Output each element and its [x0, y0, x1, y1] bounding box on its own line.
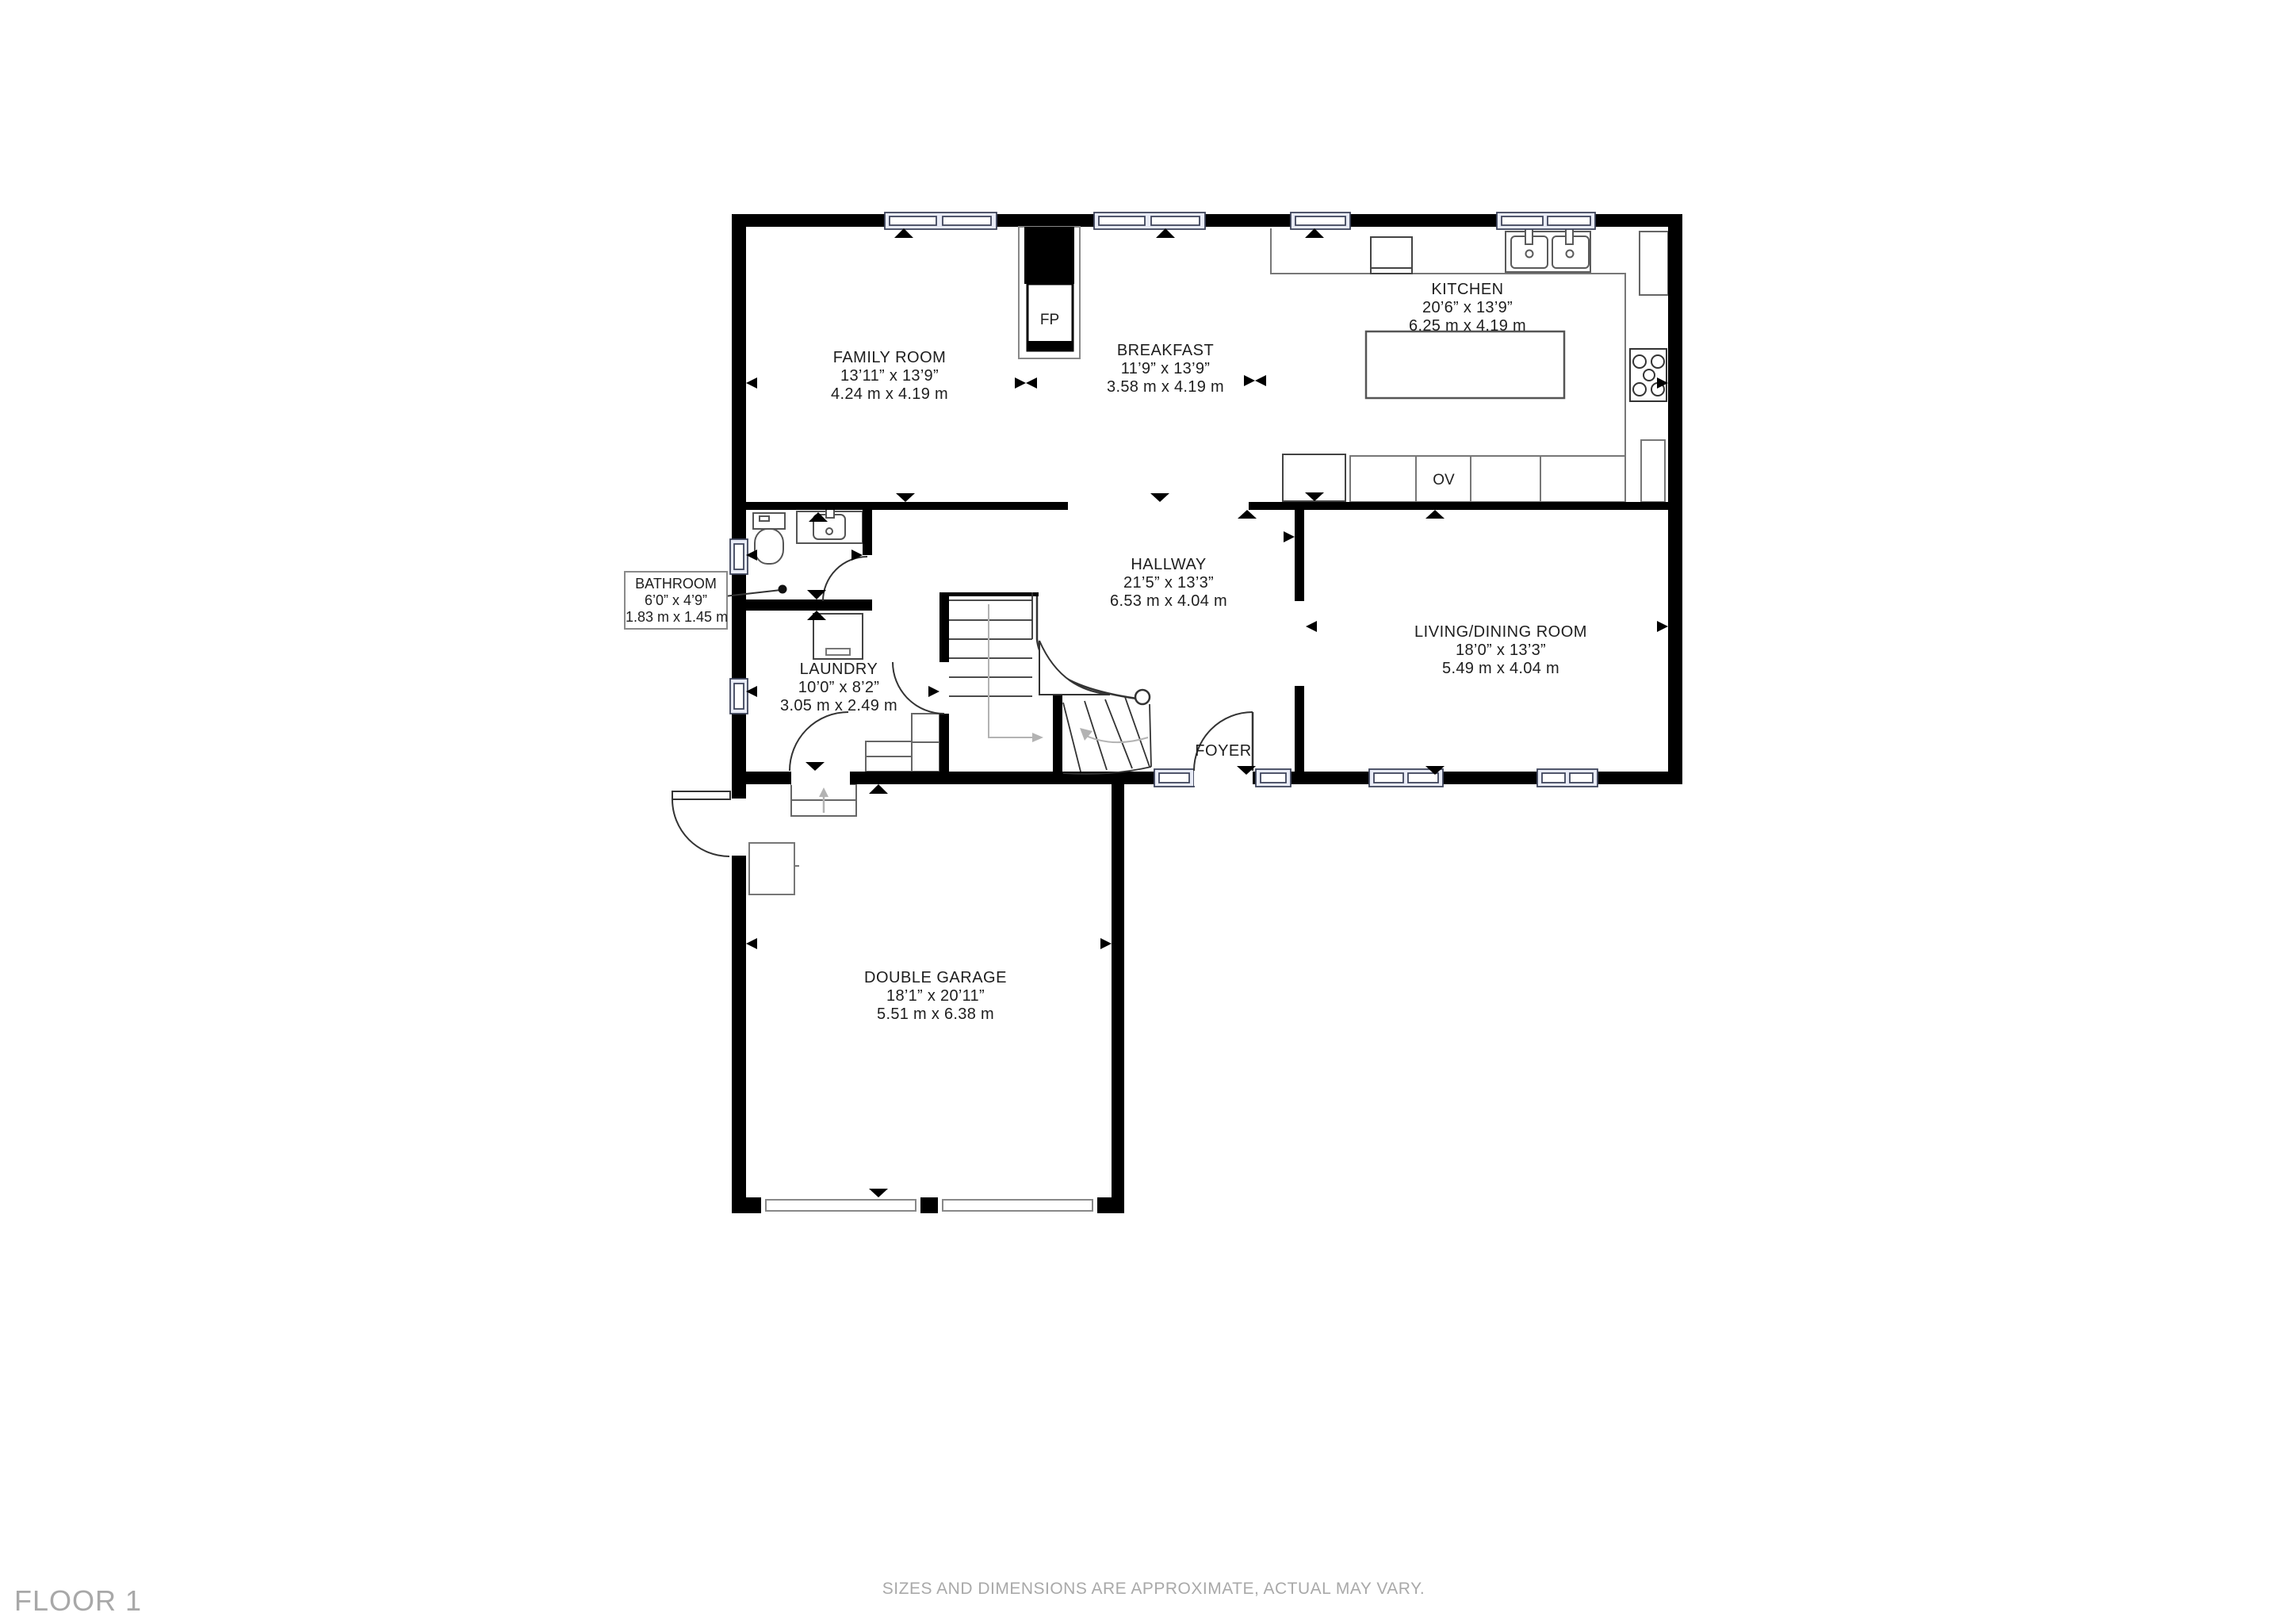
arrow-family-left	[746, 377, 757, 389]
sidelite-right	[1256, 769, 1291, 787]
window-bathroom	[730, 539, 748, 574]
garage-side-door	[672, 791, 730, 856]
bathroom-door-arc	[823, 557, 867, 601]
wall-oven-cabinet: OV	[1433, 472, 1455, 488]
wall-bathroom-south	[732, 599, 872, 611]
fridge-icon	[1640, 232, 1668, 295]
wall-laundry-east-upper	[939, 592, 949, 662]
floor-label: FLOOR 1	[14, 1584, 142, 1618]
room-label-bathroom-callout: BATHROOM 6’0” x 4’9” 1.83 m x 1.45 m	[624, 571, 728, 630]
room-label-kitchen: KITCHEN 20’6” x 13’9” 6.25 m x 4.19 m	[1409, 281, 1526, 335]
fireplace-icon: FP	[997, 214, 1094, 358]
room-label-garage: DOUBLE GARAGE 18’1” x 20’11” 5.51 m x 6.…	[864, 969, 1007, 1024]
arrow-living-left	[1306, 621, 1317, 632]
window-breakfast	[1094, 213, 1205, 229]
marker-hallway-opening-left	[1238, 510, 1257, 519]
opening-garage-side-door	[732, 799, 746, 856]
room-label-family-room: FAMILY ROOM 13’11” x 13’9” 4.24 m x 4.19…	[831, 349, 948, 404]
disclaimer-text: SIZES AND DIMENSIONS ARE APPROXIMATE, AC…	[882, 1580, 1425, 1599]
room-label-foyer: FOYER	[1195, 742, 1251, 760]
room-label-living-dining: LIVING/DINING ROOM 18’0” x 13’3” 5.49 m …	[1414, 623, 1587, 678]
laundry-door-arc	[893, 662, 944, 714]
arrow-family-right	[1015, 377, 1026, 389]
double-sink-icon	[1506, 228, 1590, 272]
floor-plan-page: OV	[0, 0, 2296, 1624]
counter-appliance-icon	[1371, 237, 1412, 274]
laundry-steps	[866, 714, 939, 772]
wall-stair-top-edge	[939, 592, 1039, 596]
toilet-icon	[753, 513, 785, 564]
stairs-icon	[949, 592, 1151, 774]
wall-family-south	[732, 502, 1068, 510]
wall-kitchen-south	[1249, 502, 1682, 510]
wall-garage-right	[1112, 784, 1124, 1213]
arrow-hallway-right	[1284, 531, 1295, 542]
corner-cabinet	[1641, 440, 1665, 502]
wall-living-west-upper	[1295, 510, 1304, 601]
wall-stair-stub	[1053, 688, 1062, 772]
floor-plan-drawing: OV	[0, 0, 2296, 1624]
window-kitchen-large	[1497, 213, 1595, 229]
arrow-garage-left	[746, 938, 757, 949]
opening-laundry-garage	[791, 771, 850, 785]
sidelite-left	[1154, 769, 1194, 787]
front-door	[1194, 712, 1253, 771]
arrow-breakfast-left	[1026, 377, 1037, 389]
newel-post	[1135, 690, 1150, 704]
garage-door-right	[938, 1196, 1097, 1215]
oven-label: OV	[1433, 472, 1455, 488]
washer-icon	[813, 614, 863, 659]
wall-right	[1668, 214, 1682, 784]
room-label-hallway: HALLWAY 21’5” x 13’3” 6.53 m x 4.04 m	[1110, 556, 1227, 611]
window-family	[885, 213, 997, 229]
marker-hallway-kitchen	[1425, 510, 1445, 519]
arrow-kitchen-left	[1255, 375, 1266, 386]
arrow-breakfast-right	[1244, 375, 1255, 386]
kitchen-island	[1366, 331, 1564, 398]
cooktop-icon	[1630, 349, 1667, 401]
arrow-living-right	[1657, 621, 1668, 632]
arrow-laundry-right	[928, 686, 939, 697]
wall-bathroom-east-upper	[863, 510, 872, 555]
marker-garage-stoop	[869, 784, 888, 794]
laundry-garage-door-arc	[790, 712, 848, 771]
room-label-breakfast: BREAKFAST 11’9” x 13’9” 3.58 m x 4.19 m	[1107, 342, 1224, 396]
marker-family-wall	[896, 493, 915, 502]
arrow-garage-right	[1100, 938, 1112, 949]
water-heater-icon	[749, 843, 799, 894]
garage-door-left	[761, 1196, 920, 1215]
marker-laundry-garage-door	[806, 762, 825, 771]
window-kitchen-small	[1291, 213, 1350, 229]
window-laundry	[730, 679, 748, 714]
wall-laundry-east-lower	[939, 714, 949, 772]
arrow-bathroom-right	[851, 550, 863, 561]
marker-breakfast-opening	[1150, 493, 1169, 502]
fireplace-label: FP	[1040, 312, 1059, 328]
window-living-b	[1537, 769, 1598, 787]
base-cabinets	[1350, 456, 1625, 502]
wall-living-west-lower	[1295, 686, 1304, 772]
room-label-laundry: LAUNDRY 10’0” x 8’2” 3.05 m x 2.49 m	[780, 661, 897, 715]
vanity-sink-icon	[797, 508, 863, 543]
